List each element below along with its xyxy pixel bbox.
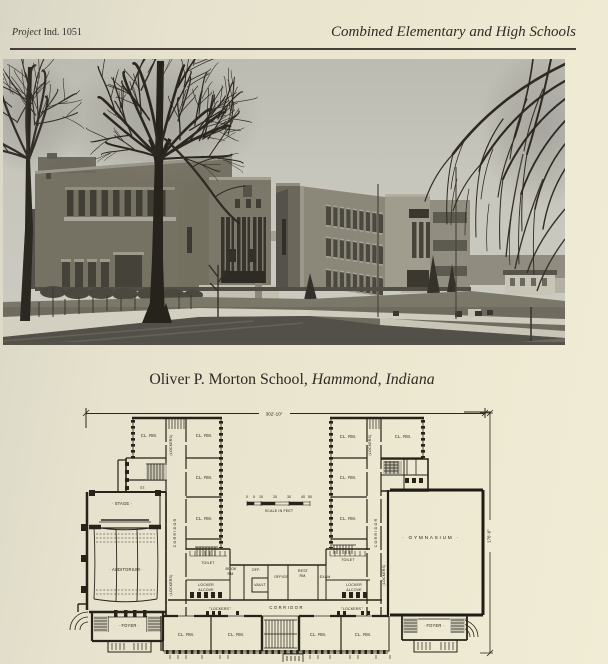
- svg-text:CL. RM.: CL. RM.: [340, 434, 356, 439]
- svg-text:· STAGE ·: · STAGE ·: [112, 501, 132, 506]
- svg-text:· AUDITORIUM ·: · AUDITORIUM ·: [109, 567, 142, 572]
- svg-text:CL. RM.: CL. RM.: [310, 632, 326, 637]
- svg-text:176'-6": 176'-6": [487, 529, 492, 543]
- svg-text:OFF.: OFF.: [252, 568, 260, 572]
- svg-text:⌜LOCKERS⌝: ⌜LOCKERS⌝: [341, 606, 363, 611]
- svg-text:ALCOVE: ALCOVE: [346, 588, 362, 592]
- svg-text:C O R R I D O R: C O R R I D O R: [173, 518, 177, 547]
- svg-text:CL. RM.: CL. RM.: [355, 632, 371, 637]
- svg-text:· GYMNASIUM ·: · GYMNASIUM ·: [402, 535, 460, 541]
- svg-text:CL. RM.: CL. RM.: [141, 433, 157, 438]
- svg-text:OFFICE: OFFICE: [274, 575, 289, 579]
- svg-text:LOCKER: LOCKER: [198, 583, 214, 587]
- svg-text:C O R R I D O R: C O R R I D O R: [269, 605, 302, 610]
- svg-text:302'-10": 302'-10": [266, 412, 283, 417]
- svg-text:⌜LOCKERS⌝: ⌜LOCKERS⌝: [209, 606, 231, 611]
- svg-text:(LOCKERS): (LOCKERS): [169, 575, 173, 596]
- svg-text:TOILET: TOILET: [201, 561, 215, 565]
- svg-text:SCALE IN FEET: SCALE IN FEET: [265, 509, 294, 513]
- svg-text:VAULT: VAULT: [254, 583, 266, 587]
- svg-text:30: 30: [287, 495, 291, 499]
- svg-text:20: 20: [273, 495, 277, 499]
- svg-text:10: 10: [259, 495, 263, 499]
- svg-text:0: 0: [246, 495, 248, 499]
- svg-text:CL. RM.: CL. RM.: [228, 632, 244, 637]
- svg-text:5: 5: [253, 495, 255, 499]
- svg-text:BOOK: BOOK: [226, 567, 237, 571]
- svg-text:CL. RM.: CL. RM.: [340, 475, 356, 480]
- svg-text:CL. RM.: CL. RM.: [196, 433, 212, 438]
- svg-text:ST.: ST.: [140, 486, 146, 490]
- svg-text:(LOCKERS): (LOCKERS): [368, 435, 372, 456]
- svg-text:C O R R I D O R: C O R R I D O R: [374, 518, 378, 547]
- svg-text:RM.: RM.: [227, 572, 234, 576]
- svg-text:ALCOVE: ALCOVE: [198, 588, 214, 592]
- svg-text:CL. RM.: CL. RM.: [196, 516, 212, 521]
- svg-text:· FOYER ·: · FOYER ·: [424, 623, 445, 628]
- svg-text:40: 40: [301, 495, 305, 499]
- svg-text:(LOCKERS): (LOCKERS): [169, 435, 173, 456]
- svg-text:CL. RM.: CL. RM.: [340, 516, 356, 521]
- svg-text:CL. RM.: CL. RM.: [395, 434, 411, 439]
- svg-text:REST: REST: [298, 569, 309, 573]
- svg-text:50: 50: [308, 495, 312, 499]
- svg-text:LOCKER: LOCKER: [346, 583, 362, 587]
- svg-text:CL. RM.: CL. RM.: [178, 632, 194, 637]
- svg-text:RM.: RM.: [299, 574, 306, 578]
- svg-text:(LOCKERS): (LOCKERS): [382, 565, 386, 586]
- svg-text:· FOYER ·: · FOYER ·: [119, 623, 140, 628]
- svg-text:CL. RM.: CL. RM.: [196, 475, 212, 480]
- svg-text:TOILET: TOILET: [341, 558, 355, 562]
- svg-text:EXAM: EXAM: [320, 575, 331, 579]
